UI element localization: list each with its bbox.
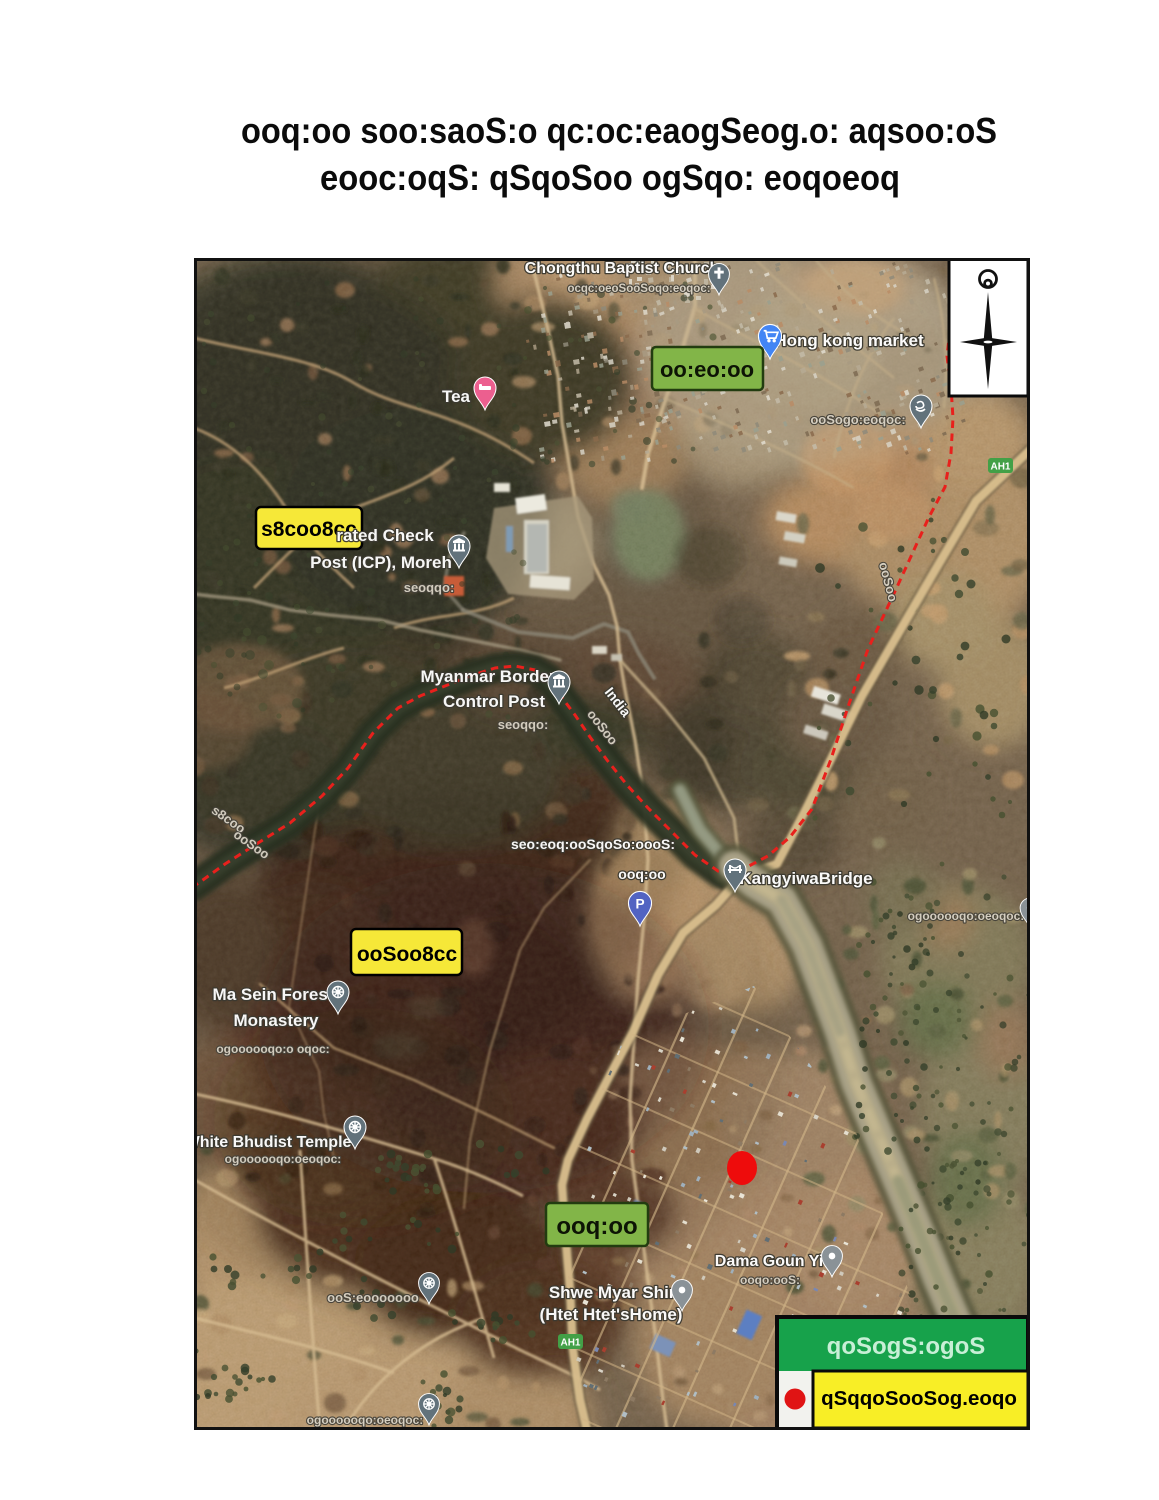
svg-text:Control Post: Control Post (443, 692, 545, 711)
svg-text:Chongthu Baptist Church: Chongthu Baptist Church (525, 260, 720, 277)
svg-text:rated Check: rated Check (336, 526, 434, 545)
svg-text:qSqqoSooSog.eoqo: qSqqoSooSog.eoqo (821, 1387, 1017, 1410)
svg-text:ogoooooqo:oeoqoc:: ogoooooqo:oeoqoc: (225, 1152, 342, 1166)
svg-text:Post (ICP), Moreh: Post (ICP), Moreh (310, 553, 452, 572)
svg-text:Shwe Myar Shin: Shwe Myar Shin (549, 1283, 679, 1302)
svg-text:ooq:oo: ooq:oo (556, 1213, 637, 1240)
svg-text:ocqc:oeoSooSoqo:eoqoc:: ocqc:oeoSooSoqo:eoqoc: (567, 283, 710, 295)
svg-text:White Bhudist Temple: White Bhudist Temple (194, 1134, 352, 1151)
svg-text:oo:eo:oo: oo:eo:oo (660, 357, 754, 382)
svg-text:Dama Goun Yi: Dama Goun Yi (715, 1253, 823, 1270)
svg-text:ooSogo:eoqoc:: ooSogo:eoqoc: (810, 412, 905, 427)
svg-text:AH1: AH1 (990, 462, 1010, 473)
svg-text:ooq:oo: ooq:oo (618, 866, 665, 882)
svg-text:AH1: AH1 (560, 1338, 580, 1349)
svg-text:qoSogS:ogoS: qoSogS:ogoS (827, 1333, 986, 1360)
svg-text:seoqqo:: seoqqo: (498, 717, 549, 732)
svg-text:(Htet Htet'sHome): (Htet Htet'sHome) (540, 1305, 683, 1324)
svg-text:seoqqo:: seoqqo: (404, 580, 455, 595)
svg-text:Hong kong market: Hong kong market (774, 331, 924, 350)
svg-text:KangyiwaBridge: KangyiwaBridge (739, 869, 872, 888)
svg-text:Ma Sein Forest: Ma Sein Forest (213, 985, 334, 1004)
svg-text:ooS:eooooooo: ooS:eooooooo (327, 1290, 419, 1305)
svg-text:Monastery: Monastery (233, 1011, 319, 1030)
svg-text:ooqo:ooS:: ooqo:ooS: (740, 1273, 800, 1287)
svg-text:Tea: Tea (442, 387, 471, 406)
svg-text:ogoooooqo:oeoqoc:: ogoooooqo:oeoqoc: (307, 1413, 424, 1427)
svg-text:Myanmar Border: Myanmar Border (420, 667, 555, 686)
svg-text:P: P (635, 896, 644, 911)
svg-text:seo:eoq:ooSqoSo:oooS:: seo:eoq:ooSqoSo:oooS: (511, 836, 675, 852)
svg-text:ogoooooqo:o oqoc:: ogoooooqo:o oqoc: (216, 1042, 329, 1056)
svg-text:ooSoo8cc: ooSoo8cc (357, 943, 458, 966)
svg-text:ogoooooqo:oeoqoc:: ogoooooqo:oeoqoc: (908, 909, 1025, 923)
